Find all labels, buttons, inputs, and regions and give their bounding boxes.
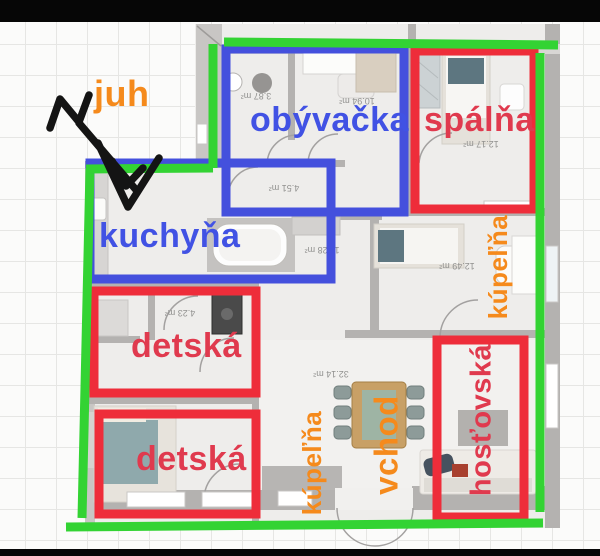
letterbox-top (0, 0, 600, 22)
label-kupelna-bottom: kúpeľňa (299, 411, 325, 516)
area-label-hall: 4.51 m² (269, 183, 300, 193)
label-juh: juh (94, 76, 149, 112)
label-kuchyna: kuchyňa (99, 219, 240, 253)
label-spalna: spálňa (424, 103, 535, 137)
letterbox-bottom (0, 549, 600, 556)
label-hostovska: hosťovská (468, 344, 497, 496)
annotated-floorplan-screenshot: 3.87 m² 10.94 m² 12.17 m² 4.51 m² 11.28 … (0, 0, 600, 556)
label-detska-1: detská (131, 329, 242, 363)
area-label-room-b: 12.49 m² (439, 261, 475, 271)
label-detska-2: detská (136, 442, 247, 476)
area-label-wc: 3.87 m² (241, 91, 272, 101)
area-label-spalna: 12.17 m² (463, 139, 499, 149)
label-vchod: vchod (370, 395, 403, 495)
label-obyvacka: obývačka (250, 103, 409, 137)
area-label-living: 32.14 m² (313, 369, 349, 379)
label-kupelna-right: kúpeľňa (485, 215, 511, 320)
area-label-detska-bath: 4.23 m² (165, 308, 196, 318)
